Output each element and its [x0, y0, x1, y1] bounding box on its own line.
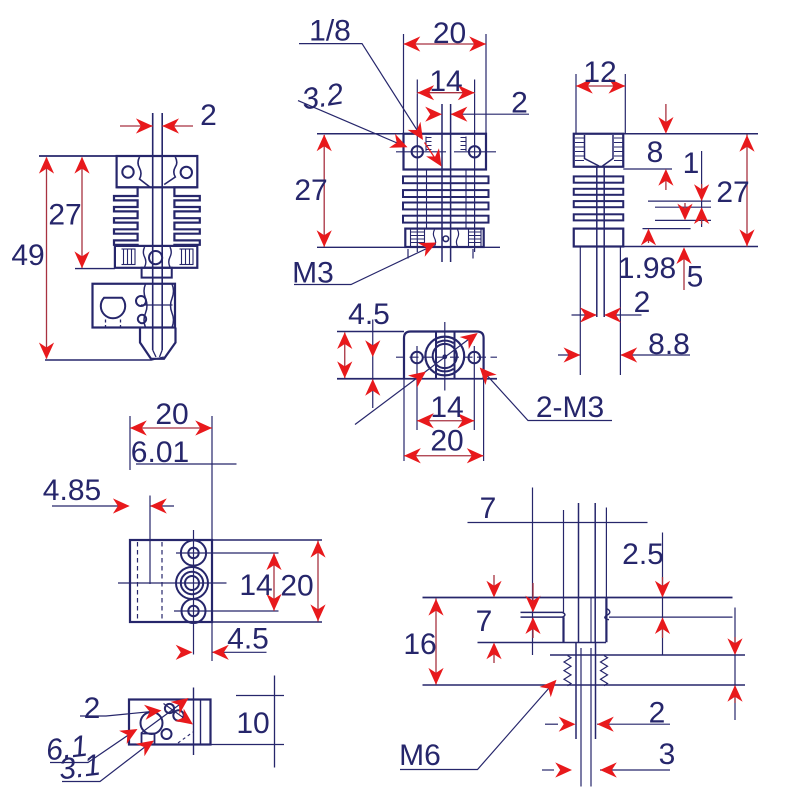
svg-text:2: 2	[649, 697, 666, 730]
svg-text:7: 7	[480, 492, 497, 525]
svg-text:1/8: 1/8	[309, 15, 351, 48]
svg-text:5: 5	[687, 261, 704, 294]
svg-text:3: 3	[659, 738, 676, 771]
svg-text:20: 20	[430, 425, 463, 458]
svg-text:12: 12	[583, 56, 616, 89]
svg-text:2-M3: 2-M3	[536, 391, 604, 424]
svg-text:20: 20	[155, 398, 188, 431]
svg-text:2: 2	[200, 99, 217, 132]
svg-text:14: 14	[239, 569, 272, 602]
svg-text:7: 7	[476, 605, 493, 638]
svg-text:10: 10	[236, 707, 269, 740]
svg-text:8: 8	[647, 136, 664, 169]
svg-text:2: 2	[634, 286, 651, 319]
svg-text:49: 49	[11, 239, 44, 272]
svg-text:27: 27	[294, 174, 327, 207]
svg-text:4.5: 4.5	[227, 623, 269, 656]
svg-text:3.1: 3.1	[57, 749, 102, 787]
svg-text:1: 1	[683, 147, 700, 180]
svg-text:8.8: 8.8	[648, 328, 690, 361]
svg-text:2: 2	[511, 87, 528, 120]
svg-text:2.5: 2.5	[622, 538, 664, 571]
svg-text:M6: M6	[399, 739, 441, 772]
svg-text:20: 20	[433, 17, 466, 50]
svg-text:16: 16	[403, 628, 436, 661]
svg-text:1.98: 1.98	[618, 252, 676, 285]
svg-text:6.01: 6.01	[131, 436, 189, 469]
svg-text:4.5: 4.5	[348, 298, 390, 331]
svg-text:27: 27	[716, 176, 749, 209]
svg-text:2: 2	[84, 692, 101, 725]
svg-text:14: 14	[430, 391, 463, 424]
svg-text:14: 14	[429, 65, 462, 98]
svg-text:20: 20	[280, 570, 313, 603]
svg-text:4.85: 4.85	[43, 474, 101, 507]
svg-text:27: 27	[48, 199, 81, 232]
